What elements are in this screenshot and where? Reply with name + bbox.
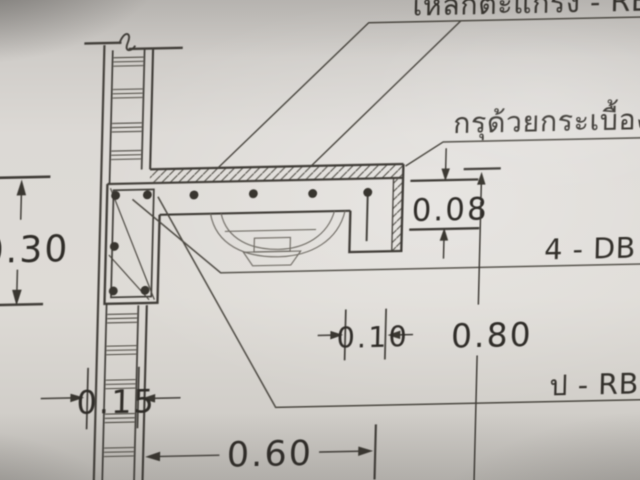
dim-slab-thickness: 0.08 xyxy=(409,147,491,259)
sink-profile xyxy=(209,211,345,267)
tile-finish-label: กรุด้วยกระเบื้องเ xyxy=(453,99,640,141)
dim-depth: 0.60 xyxy=(145,424,376,480)
stirrup-label: ป - RB Ø xyxy=(549,366,640,403)
mesh-leader xyxy=(218,16,640,167)
dim-edge-width-value: 0.10 xyxy=(336,319,409,355)
dim-beam-depth: 0.30 xyxy=(0,176,71,306)
dim-wall-thickness: 0.15 xyxy=(40,366,181,430)
main-bars-label: 4 - DB Ø xyxy=(544,230,640,267)
break-line-symbol xyxy=(84,33,183,51)
dim-depth-value: 0.60 xyxy=(226,434,313,476)
hanger-bar xyxy=(367,196,368,242)
paper-sheet: เหล็กตะแกรง - RB Ø กรุด้วยกระเบื้องเ 4 -… xyxy=(0,0,640,480)
brick-hatch-upper xyxy=(111,57,143,159)
photo-of-drawing: เหล็กตะแกรง - RB Ø กรุด้วยกระเบื้องเ 4 -… xyxy=(0,0,640,480)
drawing-canvas: เหล็กตะแกรง - RB Ø กรุด้วยกระเบื้องเ 4 -… xyxy=(0,0,640,480)
dim-slab-thickness-value: 0.08 xyxy=(411,192,489,230)
mesh-rebar-label: เหล็กตะแกรง - RB Ø xyxy=(412,0,640,22)
tile-leader xyxy=(405,137,640,166)
dim-wall-thickness-value: 0.15 xyxy=(76,382,156,422)
dim-beam-depth-value: 0.30 xyxy=(0,228,70,272)
dim-height-value: 0.80 xyxy=(451,315,534,356)
dim-edge-width: 0.10 xyxy=(317,308,414,361)
